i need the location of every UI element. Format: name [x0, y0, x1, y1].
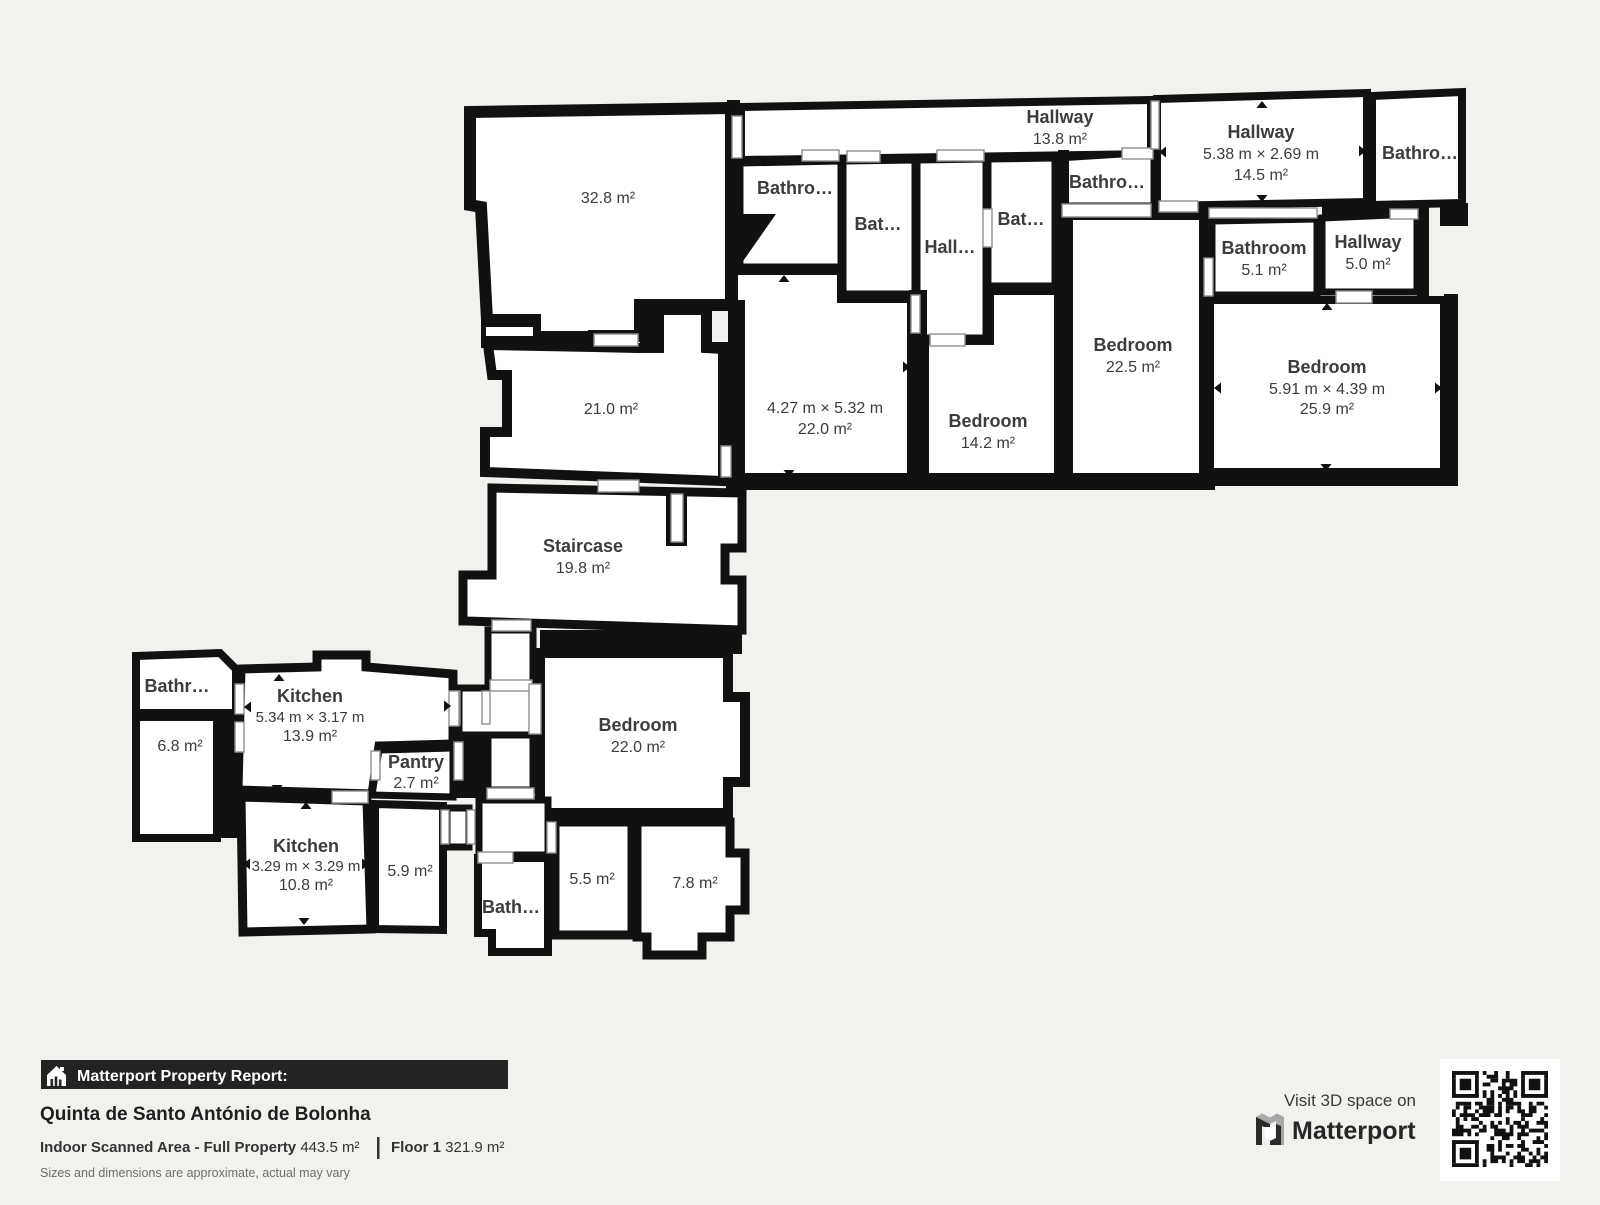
svg-text:Floor 1 321.9 m²: Floor 1 321.9 m² — [391, 1139, 504, 1156]
svg-text:22.0 m²: 22.0 m² — [798, 421, 853, 438]
svg-text:5.5 m²: 5.5 m² — [569, 871, 615, 888]
svg-text:4.27 m × 5.32 m: 4.27 m × 5.32 m — [767, 400, 883, 417]
svg-text:22.5 m²: 22.5 m² — [1106, 359, 1161, 376]
svg-text:Hallway: Hallway — [1227, 122, 1294, 142]
svg-text:Bedroom: Bedroom — [948, 411, 1027, 431]
svg-text:Hall…: Hall… — [924, 237, 975, 257]
svg-text:7.8 m²: 7.8 m² — [672, 875, 718, 892]
svg-text:Kitchen: Kitchen — [277, 686, 343, 706]
svg-text:Hallway: Hallway — [1026, 107, 1093, 127]
svg-text:Bath…: Bath… — [482, 897, 540, 917]
svg-text:32.8 m²: 32.8 m² — [581, 190, 636, 207]
svg-text:Visit 3D space on: Visit 3D space on — [1284, 1091, 1416, 1110]
svg-text:5.91 m × 4.39 m: 5.91 m × 4.39 m — [1269, 381, 1385, 398]
svg-text:Bathro…: Bathro… — [1069, 172, 1145, 192]
svg-text:21.0 m²: 21.0 m² — [584, 401, 639, 418]
svg-text:Staircase: Staircase — [543, 536, 623, 556]
svg-text:Bathro…: Bathro… — [1382, 143, 1458, 163]
svg-text:Bathroom: Bathroom — [1222, 238, 1307, 258]
svg-text:Matterport: Matterport — [1292, 1117, 1416, 1145]
svg-text:Bathro…: Bathro… — [757, 178, 833, 198]
svg-text:3.29 m × 3.29 m: 3.29 m × 3.29 m — [252, 858, 361, 875]
svg-text:13.9 m²: 13.9 m² — [283, 728, 338, 745]
svg-text:Bat…: Bat… — [997, 209, 1044, 229]
svg-text:Hallway: Hallway — [1334, 232, 1401, 252]
svg-text:Matterport Property Report:: Matterport Property Report: — [77, 1068, 288, 1085]
svg-text:14.2 m²: 14.2 m² — [961, 435, 1016, 452]
svg-text:5.34 m × 3.17 m: 5.34 m × 3.17 m — [256, 709, 365, 726]
svg-text:Bedroom: Bedroom — [1287, 357, 1366, 377]
svg-text:22.0 m²: 22.0 m² — [611, 739, 666, 756]
svg-text:13.8 m²: 13.8 m² — [1033, 131, 1088, 148]
svg-text:6.8 m²: 6.8 m² — [157, 738, 203, 755]
svg-text:Kitchen: Kitchen — [273, 836, 339, 856]
svg-text:10.8 m²: 10.8 m² — [279, 877, 334, 894]
svg-text:19.8 m²: 19.8 m² — [556, 560, 611, 577]
svg-text:5.38 m × 2.69 m: 5.38 m × 2.69 m — [1203, 146, 1319, 163]
svg-text:2.7 m²: 2.7 m² — [393, 775, 439, 792]
svg-text:Bat…: Bat… — [854, 214, 901, 234]
svg-text:5.9 m²: 5.9 m² — [387, 863, 433, 880]
svg-text:Bathr…: Bathr… — [144, 676, 209, 696]
svg-text:Sizes and dimensions are appro: Sizes and dimensions are approximate, ac… — [40, 1166, 351, 1180]
svg-text:5.1 m²: 5.1 m² — [1241, 262, 1287, 279]
svg-text:Quinta de Santo António de Bol: Quinta de Santo António de Bolonha — [40, 1104, 371, 1125]
svg-text:25.9 m²: 25.9 m² — [1300, 401, 1355, 418]
svg-text:Pantry: Pantry — [388, 752, 444, 772]
svg-text:5.0 m²: 5.0 m² — [1345, 256, 1391, 273]
svg-text:Bedroom: Bedroom — [598, 715, 677, 735]
svg-text:14.5 m²: 14.5 m² — [1234, 167, 1289, 184]
svg-text:Bedroom: Bedroom — [1093, 335, 1172, 355]
svg-text:Indoor Scanned Area - Full Pro: Indoor Scanned Area - Full Property 443.… — [40, 1139, 360, 1156]
